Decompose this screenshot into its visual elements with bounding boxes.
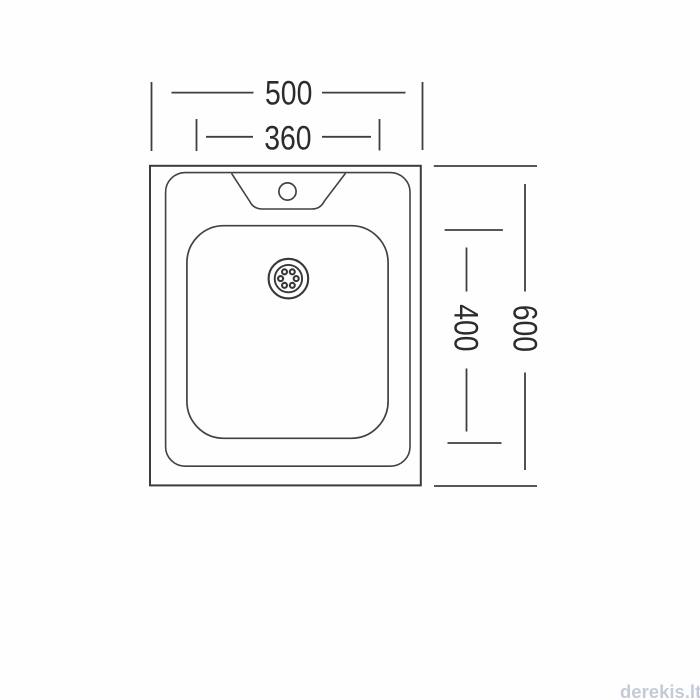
svg-text:360: 360	[264, 118, 311, 157]
svg-text:600: 600	[506, 305, 545, 352]
svg-text:500: 500	[265, 73, 312, 112]
svg-text:derekis.lt: derekis.lt	[620, 681, 700, 700]
svg-text:400: 400	[447, 304, 486, 351]
